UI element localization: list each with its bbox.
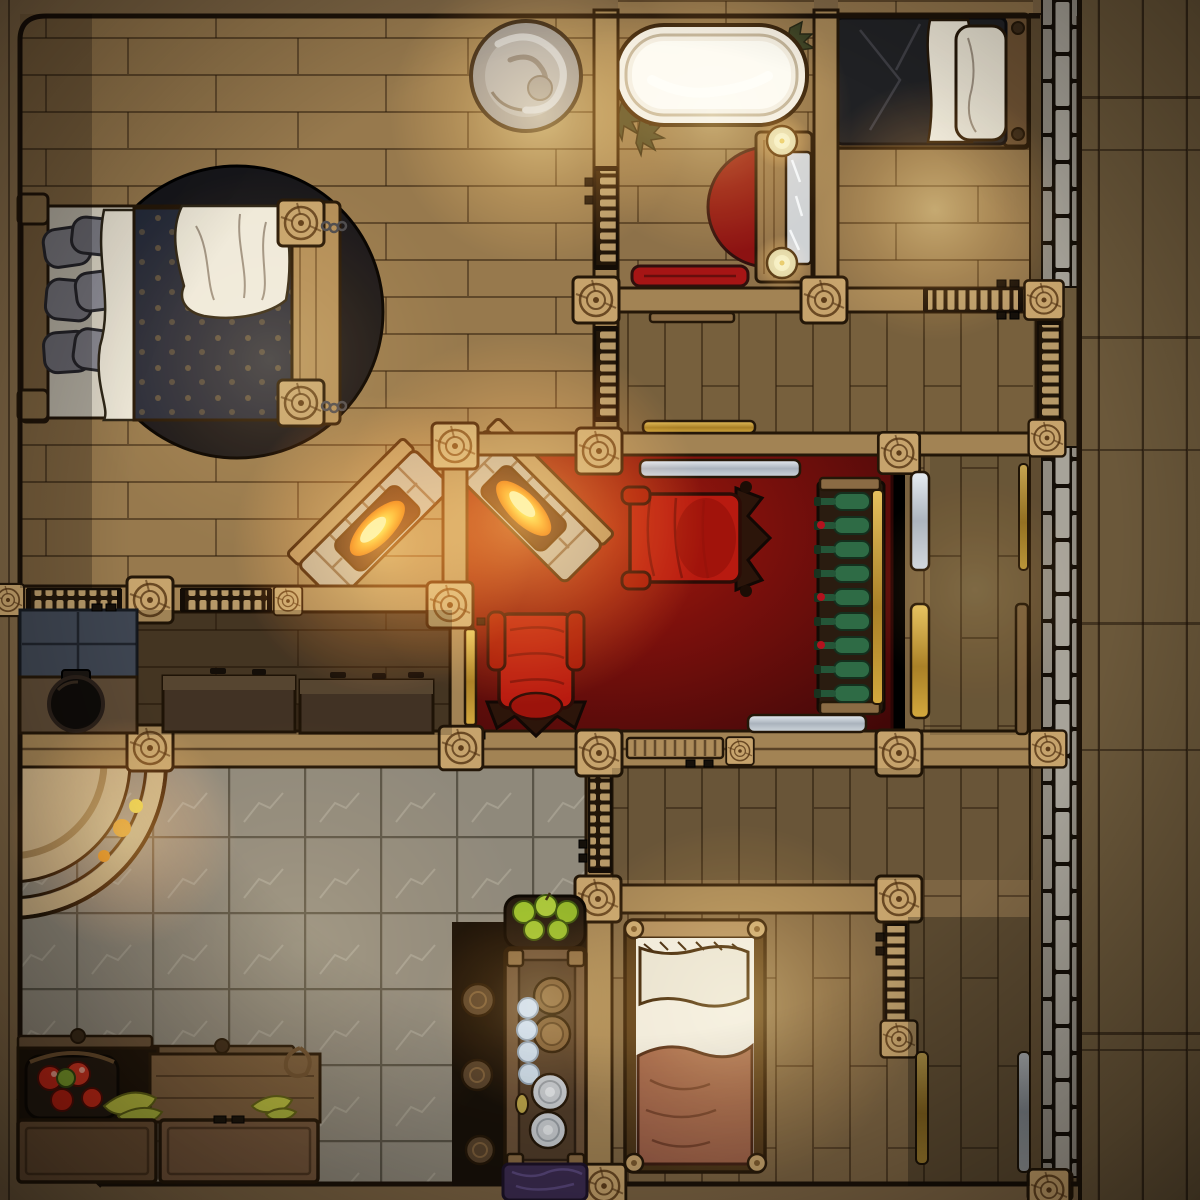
battlemap-canvas [0,0,1200,1200]
shadow-overlays [0,0,1200,1200]
battlemap-svg [0,0,1200,1200]
